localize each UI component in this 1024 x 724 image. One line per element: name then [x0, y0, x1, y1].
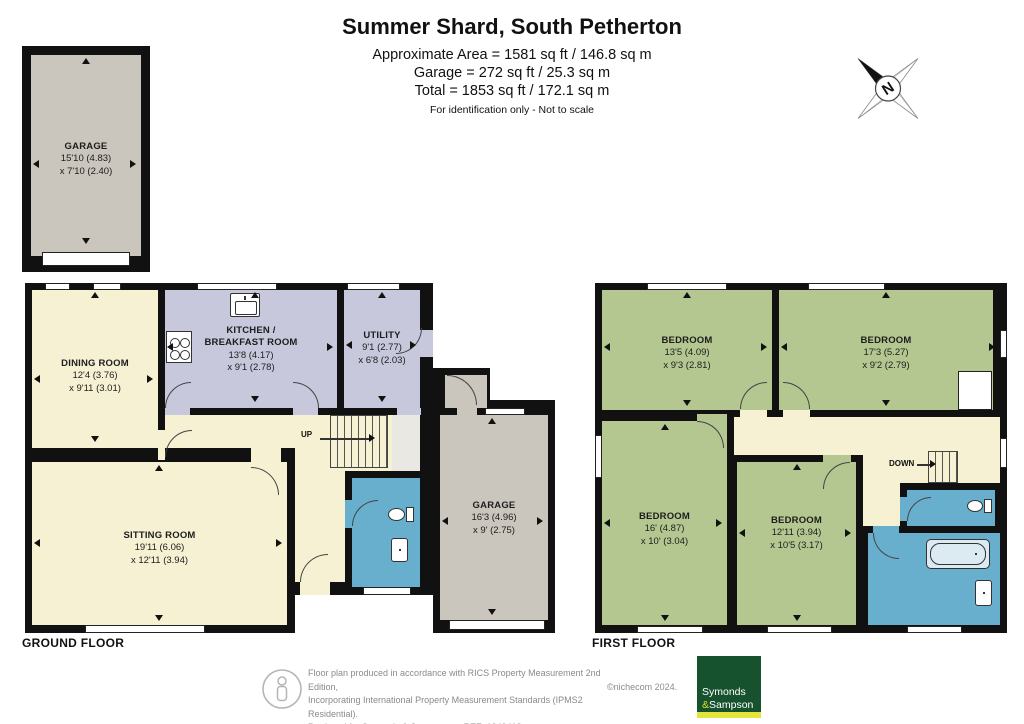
window: [485, 408, 525, 415]
window: [767, 626, 832, 633]
door-opening: [823, 455, 851, 462]
floorplan-page: Summer Shard, South Petherton Approximat…: [0, 0, 1024, 724]
first-floor-plan: DOWN BEDROOM 13'5 (4.09) x 9'3 (2.81) BE…: [595, 283, 1007, 633]
dim-arrow: [155, 615, 163, 621]
room-cloakroom: [352, 478, 420, 587]
door-opening: [783, 410, 810, 417]
burner: [170, 350, 180, 360]
window: [907, 626, 962, 633]
dim-arrow: [683, 292, 691, 298]
ground-floor-caption: GROUND FLOOR: [22, 636, 124, 650]
logo-text-bottom: &Sampson: [702, 699, 753, 712]
dim-arrow: [604, 343, 610, 351]
logo-ampersand: &: [702, 699, 709, 711]
sink-tap: [244, 296, 246, 300]
landing: [863, 417, 900, 526]
stairs-direction-arrow: [930, 460, 936, 468]
stairs-direction-line: [320, 438, 370, 440]
door-opening: [158, 430, 165, 460]
stairs-up: [330, 415, 388, 468]
door-opening: [251, 443, 281, 463]
dim-arrow: [34, 375, 40, 383]
room-sitting: [32, 462, 287, 625]
dim-arrow: [661, 424, 669, 430]
bathtub-drain: [975, 553, 977, 555]
dim-arrow: [155, 465, 163, 471]
basin-icon: [975, 580, 992, 606]
door-opening: [873, 526, 899, 533]
dim-arrow: [167, 343, 173, 351]
door-opening: [457, 408, 477, 415]
window: [363, 587, 411, 595]
stairs-label: UP: [301, 430, 312, 439]
footer-line-1: Floor plan produced in accordance with R…: [308, 667, 608, 694]
logo-text: Symonds &Sampson: [702, 686, 753, 711]
page-title: Summer Shard, South Petherton: [0, 14, 1024, 40]
basin-drain: [983, 592, 985, 594]
window: [45, 283, 70, 290]
dim-arrow: [442, 517, 448, 525]
door-opening: [740, 410, 767, 417]
compass-star: N: [843, 42, 933, 137]
door-opening: [900, 497, 907, 521]
stairs-direction-line: [917, 464, 931, 466]
toilet-bowl: [967, 500, 983, 512]
dim-arrow: [793, 615, 801, 621]
window: [595, 435, 602, 478]
dim-arrow: [276, 539, 282, 547]
dim-arrow: [716, 519, 722, 527]
front-door-opening: [300, 582, 330, 595]
logo-text-top: Symonds: [702, 686, 753, 699]
bathtub-inner: [930, 543, 986, 565]
symonds-sampson-logo: Symonds &Sampson: [697, 656, 761, 718]
basin-icon: [391, 538, 408, 562]
door-opening: [293, 408, 318, 415]
entrance-area: [392, 415, 420, 471]
burner: [180, 350, 190, 360]
dim-arrow: [793, 464, 801, 470]
garage-door: [42, 252, 130, 266]
dim-arrow: [346, 341, 352, 349]
toilet-icon: [984, 499, 992, 513]
logo-yellow-bar: [697, 712, 761, 718]
burner: [180, 338, 190, 348]
dim-arrow: [661, 615, 669, 621]
first-floor-caption: FIRST FLOOR: [592, 636, 675, 650]
logo-sampson: Sampson: [709, 699, 753, 711]
sink-bowl: [235, 301, 257, 315]
door-opening: [165, 408, 190, 415]
dim-arrow: [604, 519, 610, 527]
dim-arrow: [327, 343, 333, 351]
window: [647, 283, 727, 290]
dim-arrow: [82, 58, 90, 64]
window: [197, 283, 277, 290]
door-opening: [420, 330, 433, 357]
detached-garage-floor: [31, 55, 141, 256]
window: [808, 283, 885, 290]
footer-copyright: ©nichecom 2024.: [607, 681, 677, 695]
dim-arrow: [130, 160, 136, 168]
footer-line-2: Incorporating International Property Mea…: [308, 694, 608, 721]
dim-arrow: [251, 292, 259, 298]
dim-arrow: [882, 400, 890, 406]
dim-arrow: [410, 341, 416, 349]
window: [347, 283, 400, 290]
dim-arrow: [378, 396, 386, 402]
closet: [958, 371, 992, 410]
dim-arrow: [781, 343, 787, 351]
compass-icon: N: [843, 42, 933, 137]
dim-arrow: [761, 343, 767, 351]
dim-arrow: [147, 375, 153, 383]
toilet-icon: [406, 507, 414, 522]
toilet-bowl: [388, 508, 405, 521]
dim-arrow: [34, 539, 40, 547]
dim-arrow: [33, 160, 39, 168]
room-dining: [32, 290, 158, 448]
dim-arrow: [683, 400, 691, 406]
dim-arrow: [251, 396, 259, 402]
dim-arrow: [989, 343, 995, 351]
room-bedroom-3: [602, 421, 727, 625]
bathtub-icon: [926, 539, 990, 569]
dim-arrow: [91, 436, 99, 442]
detached-garage: GARAGE 15'10 (4.83) x 7'10 (2.40): [22, 46, 150, 272]
dim-arrow: [488, 418, 496, 424]
dim-arrow: [845, 529, 851, 537]
ground-floor-plan: UP DINING ROOM 12'4 (3.76) x 9'11 (3.01)…: [25, 283, 555, 635]
window: [1000, 438, 1007, 468]
stairs-direction-arrow: [369, 434, 375, 442]
stairs-label: DOWN: [889, 459, 914, 468]
dim-arrow: [739, 529, 745, 537]
dim-arrow: [378, 292, 386, 298]
dim-arrow: [91, 292, 99, 298]
door-opening: [697, 414, 727, 421]
window: [93, 283, 121, 290]
footer-disclaimer: Floor plan produced in accordance with R…: [308, 667, 608, 724]
garage-door: [449, 620, 545, 630]
window: [85, 625, 205, 633]
room-garage: [440, 415, 548, 620]
person-icon: [261, 668, 303, 710]
window: [1000, 330, 1007, 358]
window: [637, 626, 703, 633]
dim-arrow: [488, 609, 496, 615]
dim-arrow: [882, 292, 890, 298]
person-icon-svg: [261, 668, 303, 710]
dim-arrow: [82, 238, 90, 244]
dim-arrow: [537, 517, 543, 525]
door-opening: [397, 408, 421, 415]
basin-drain: [399, 549, 401, 551]
door-opening: [345, 500, 352, 528]
